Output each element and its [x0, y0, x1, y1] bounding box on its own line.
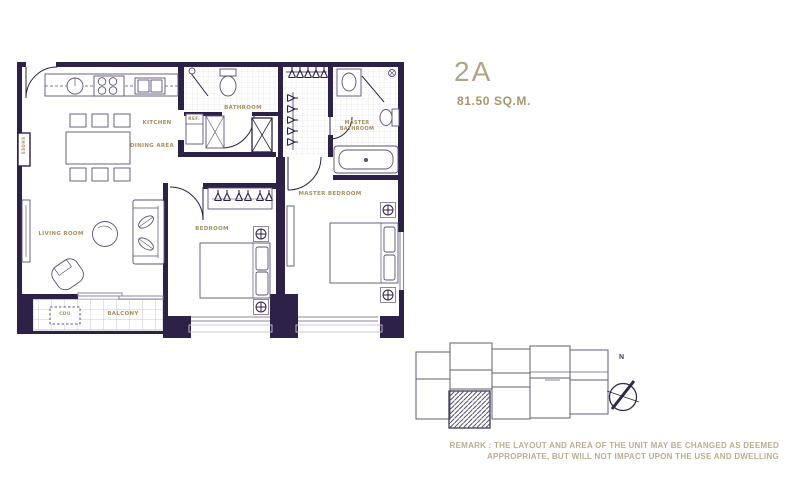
dining-set [66, 114, 130, 181]
dining-area-label: DINING AREA [130, 143, 174, 149]
shower-head [189, 68, 195, 74]
bathroom-door [222, 116, 254, 148]
highlighted-unit [449, 391, 490, 428]
stove [94, 76, 124, 96]
floor-plan-drawing [0, 0, 785, 480]
pillow [256, 247, 268, 270]
remark-line-2: APPROPRIATE, BUT WILL NOT IMPACT UPON TH… [450, 452, 779, 463]
kitchen-counter [45, 74, 178, 96]
toilet-tank [220, 69, 236, 76]
unit-area: 81.50 SQ.M. [457, 94, 531, 108]
armchair [48, 255, 87, 293]
dining-table [66, 132, 130, 164]
master-bedroom-furniture [287, 203, 398, 303]
master-bedroom-label: MASTER BEDROOM [298, 191, 361, 197]
pillow [384, 255, 395, 280]
balcony-label: BALCONY [107, 311, 138, 317]
pillow [384, 227, 395, 252]
toilet-bowl [220, 76, 236, 96]
unit-name: 2A [454, 56, 492, 88]
cdu-label: CDU [59, 312, 71, 317]
tv-panel [287, 206, 294, 266]
building-key-plan [416, 343, 608, 428]
coffee-table [93, 222, 118, 247]
nightstand-lamp [254, 227, 269, 242]
north-label: N [619, 354, 624, 361]
pillow [256, 272, 268, 295]
kitchen-label: KITCHEN [142, 120, 171, 126]
living-room-furniture [22, 200, 164, 293]
compass [607, 381, 639, 411]
nightstand-lamp [381, 203, 396, 218]
master-bedroom-door [288, 157, 321, 190]
balcony-deck [33, 299, 163, 330]
refrigerator-label: REF. [188, 117, 200, 122]
basin [342, 73, 356, 91]
bedroom-furniture [200, 188, 273, 315]
remark-line-1: REMARK : THE LAYOUT AND AREA OF THE UNIT… [450, 441, 779, 452]
bedroom-label: BEDROOM [195, 226, 229, 232]
master-toilet-tank [392, 109, 399, 126]
nightstand-lamp [381, 288, 396, 303]
master-bathroom-label: MASTER BATHROOM [337, 120, 377, 132]
floor-plan-page: KITCHEN DINING AREA REF. BATHROOM MASTER… [0, 0, 785, 480]
master-toilet-bowl [380, 110, 392, 126]
sliding-door [78, 293, 163, 299]
shoes-label: SHOES [21, 137, 26, 155]
sofa [133, 200, 164, 264]
nightstand-lamp [254, 300, 269, 315]
living-room-label: LIVING ROOM [38, 231, 83, 237]
remark: REMARK : THE LAYOUT AND AREA OF THE UNIT… [450, 441, 779, 462]
bathroom-label: BATHROOM [224, 105, 262, 111]
bedroom-door [170, 187, 203, 220]
